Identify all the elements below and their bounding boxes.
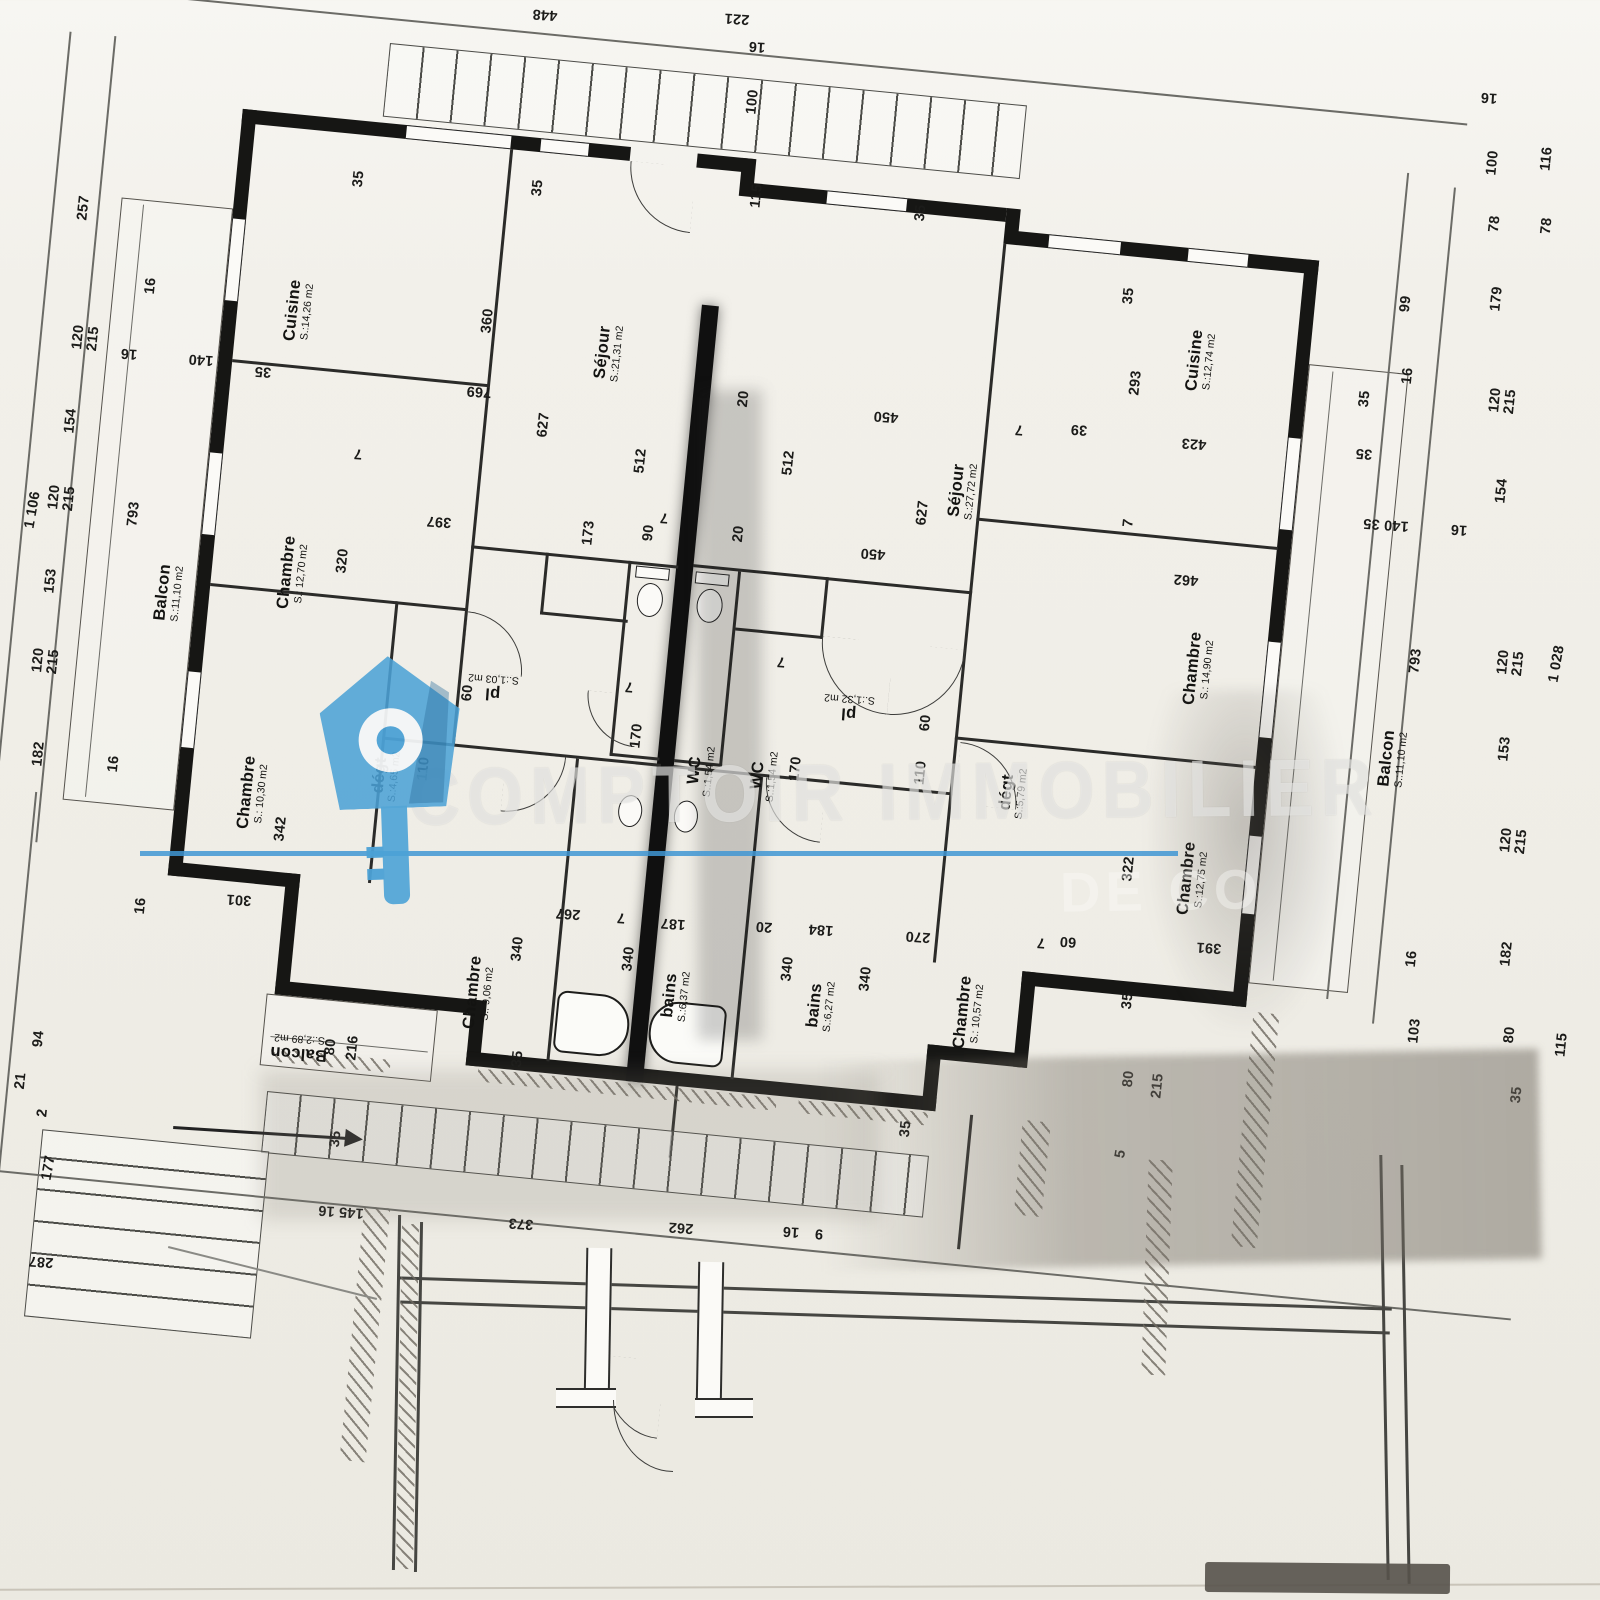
dim-label: 120 215 [1498, 827, 1530, 855]
dim-label: 154 [1493, 478, 1510, 504]
dim-label: 221 [724, 10, 750, 26]
dim-label: 7 [776, 653, 785, 668]
dim-label: 179 [1488, 286, 1505, 312]
dim-label: 627 [914, 500, 931, 526]
dim-label: 373 [508, 1215, 534, 1231]
dim-label: 391 [1196, 939, 1222, 955]
dim-label: 21 [13, 1072, 29, 1090]
dim-label: 177 [40, 1155, 59, 1182]
room-label: SéjourS.:27,72 m2 [945, 461, 980, 520]
dim-label: 462 [1173, 571, 1199, 587]
dim-label: 340 [857, 966, 874, 992]
scanned-floor-plan-page: CuisineS.:14,26 m2SéjourS.:21,31 m2Chamb… [0, 0, 1600, 1600]
dim-label: 60 [1059, 933, 1077, 949]
dim-label: 100 [744, 89, 761, 115]
dim-label: 301 [226, 891, 252, 907]
dim-label: 78 [1487, 215, 1503, 233]
dim-label: 35 [254, 363, 272, 379]
dim-label: 39 [1070, 421, 1088, 437]
dim-label: 35 [328, 1130, 344, 1148]
dim-label: 184 [808, 921, 834, 937]
dim-label: 7 [616, 909, 625, 924]
dim-label: 35 [1355, 445, 1373, 461]
room-label: ChambreS.: 14,90 m2 [1180, 631, 1217, 707]
dim-label: 173 [580, 520, 597, 546]
dim-label: 16 [133, 897, 149, 915]
dim-label: 182 [1498, 941, 1515, 967]
dim-label: 182 [30, 741, 47, 767]
dim-label: 16 [1450, 521, 1468, 537]
dim-label: 320 [334, 548, 351, 574]
dim-label: 16 [143, 277, 159, 295]
dim-label: 448 [532, 6, 558, 22]
dim-label: 342 [272, 816, 289, 842]
dim-label: 140 35 [1363, 515, 1409, 533]
dim-label: 216 [344, 1035, 361, 1061]
dim-label: 7 [624, 678, 633, 693]
dim-label: 120 215 [1495, 649, 1527, 677]
dim-label: 20 [755, 918, 773, 934]
room-label: bainsS.:6,27 m2 [804, 979, 839, 1033]
room-label: BalconS.:11,10 m2 [1375, 729, 1410, 789]
dim-label: 16 [1404, 950, 1420, 968]
room-label: plS.:1,32 m2 [823, 690, 876, 723]
logo-key-tooth [367, 869, 384, 881]
dim-label: 90 [641, 524, 657, 542]
dim-label: 360 [479, 308, 496, 334]
dim-label: 7 [1014, 421, 1023, 436]
logo-key-shaft [381, 806, 410, 905]
room-label: ChambreS.: 10,57 m2 [950, 975, 987, 1051]
dim-label: 7 [1036, 934, 1045, 949]
dim-label: 16 [1480, 89, 1498, 105]
dim-label: 103 [1406, 1018, 1423, 1044]
dim-label: 99 [1398, 295, 1414, 313]
dim-label: 16 [782, 1223, 800, 1239]
dim-label: 153 [42, 568, 59, 594]
dim-label: 423 [1181, 435, 1207, 451]
room-label: ChambreS.: 9,06 m2 [460, 955, 497, 1031]
dim-label: 145 16 [318, 1202, 364, 1220]
dim-label: 450 [873, 408, 899, 424]
brand-logo [317, 645, 476, 912]
dim-label: 7 [353, 445, 362, 460]
dim-label: 20 [731, 525, 747, 543]
dim-label: 35 [898, 1120, 914, 1138]
dim-label: 270 [905, 928, 931, 944]
dim-label: 35 [1121, 287, 1137, 305]
dim-label: 257 [75, 195, 92, 221]
dim-label: 115 [1553, 1032, 1570, 1057]
dim-label: 340 [509, 936, 526, 962]
dim-label: 120 215 [46, 484, 78, 512]
dim-label: 94 [31, 1030, 47, 1048]
dim-label: 215 [1149, 1073, 1166, 1099]
dim-label: 287 [28, 1253, 54, 1269]
dim-label: 35 [913, 204, 929, 222]
dim-label: 120 215 [1487, 387, 1519, 415]
dim-label: 267 [555, 905, 581, 921]
dim-label: 187 [660, 915, 686, 931]
dim-label: 340 [779, 956, 796, 982]
dim-label: 116 [1538, 146, 1555, 171]
dim-label: 115 [748, 183, 765, 208]
dim-label: 340 [620, 946, 637, 972]
watermark-underline [140, 851, 1178, 856]
room-label: ChambreS.: 12,70 m2 [274, 535, 311, 611]
dim-label: 16 [748, 38, 766, 54]
dim-label: 769 [466, 383, 492, 399]
dim-label: 1 028 [1546, 644, 1567, 683]
room-label: SéjourS.:21,31 m2 [591, 323, 626, 382]
dim-label: 16 [1400, 367, 1416, 385]
dim-label: 140 [188, 351, 214, 367]
dim-label: 793 [1407, 648, 1424, 674]
dim-label: 60 [918, 714, 934, 732]
dim-label: 450 [860, 545, 886, 561]
dim-label: 120 215 [30, 647, 62, 675]
dim-label: 80 [1502, 1026, 1518, 1044]
dim-label: 627 [535, 412, 552, 438]
room-label: bainsS.:6,37 m2 [659, 969, 694, 1023]
dim-label: 1 106 [22, 490, 43, 529]
dim-label: 154 [62, 408, 79, 434]
dim-label: 170 [628, 723, 645, 749]
watermark-text-partial: DE CO [1059, 856, 1262, 925]
logo-key-tooth [366, 847, 383, 859]
dim-label: 80 [323, 1038, 339, 1056]
room-label: CuisineS.:14,26 m2 [281, 279, 317, 343]
dim-label: 7 [659, 509, 668, 524]
dim-label: 80 [1121, 1070, 1137, 1088]
dim-label: 5 [1113, 1149, 1129, 1160]
dim-label: 35 [1357, 390, 1373, 408]
room-label: BalconS.:2,89 m2 [270, 1030, 329, 1064]
room-label: CuisineS.:12,74 m2 [1183, 329, 1219, 393]
dim-label: 7 [1121, 518, 1137, 528]
dim-label: 2 [35, 1108, 51, 1118]
dim-label: 100 [1484, 150, 1501, 176]
dim-label: 293 [1127, 370, 1144, 396]
dim-label: 35 [530, 179, 546, 197]
dim-label: 35 [1509, 1086, 1525, 1104]
room-label: BalconS.:11,10 m2 [151, 563, 186, 623]
dim-label: 35 [351, 170, 367, 188]
watermark-text: COMPTOIR IMMOBILIER [408, 742, 1329, 843]
dim-label: 397 [426, 513, 452, 529]
dim-label: 262 [668, 1219, 694, 1235]
dim-label: 16 [120, 345, 138, 361]
dim-label: 9 [814, 1225, 823, 1240]
dim-label: 793 [125, 501, 142, 527]
dim-label: 153 [1496, 736, 1513, 762]
dim-label: 120 215 [70, 324, 102, 352]
dim-label: 35 [510, 1050, 526, 1068]
dim-label: 78 [1539, 217, 1555, 235]
dim-label: 35 [1120, 992, 1136, 1010]
dim-label: 16 [106, 755, 122, 773]
dim-label: 512 [780, 450, 797, 476]
dim-label: 512 [632, 448, 649, 474]
dim-label: 20 [736, 390, 752, 408]
room-label: ChambreS.: 10,30 m2 [234, 755, 271, 831]
